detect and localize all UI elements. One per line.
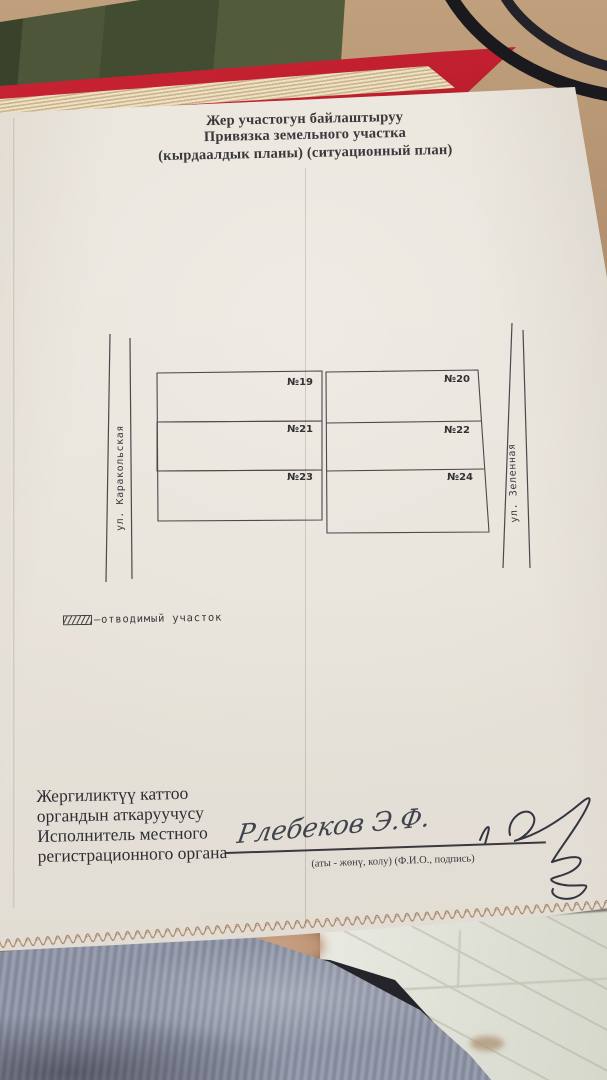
legend-label: –отводимый участок (94, 612, 222, 626)
photo-of-document: Жер участогун байлаштыруу Привязка земел… (0, 0, 607, 1080)
plot-label-22: №22 (444, 425, 470, 436)
plot-label-21: №21 (287, 424, 313, 435)
plot-block-left (157, 371, 322, 521)
plot-block-right (326, 370, 489, 533)
paper-crease (13, 118, 16, 908)
street-line-left (106, 334, 110, 582)
official-block: Жергиликтүү каттоо органдын аткаруучусу … (36, 782, 227, 866)
official-line: регистрационного органа (37, 842, 227, 866)
plot-label-20: №20 (444, 374, 470, 385)
plot-divider (326, 469, 484, 471)
street-label-right: ул. Зеленная (507, 443, 521, 523)
document-title: Жер участогун байлаштыруу Привязка земел… (55, 107, 556, 167)
plot-divider (326, 421, 481, 423)
floor-smudge (470, 1036, 504, 1051)
plot-label-24: №24 (447, 472, 473, 483)
street-label-left: ул. Каракольская (115, 425, 126, 531)
signature-flourish (452, 778, 602, 903)
handwritten-signature: Рлебеков Э.Ф. (235, 800, 469, 851)
plot-label-23: №23 (287, 472, 313, 483)
legend-hatch-swatch-icon (63, 615, 92, 626)
street-line-left (130, 338, 132, 579)
plot-label-19: №19 (287, 377, 313, 388)
legend: –отводимый участок (63, 612, 222, 627)
site-plan-diagram: ул. Каракольская ул. Зеленная №19 №20 №2… (60, 318, 540, 618)
street-line-right (523, 330, 530, 568)
